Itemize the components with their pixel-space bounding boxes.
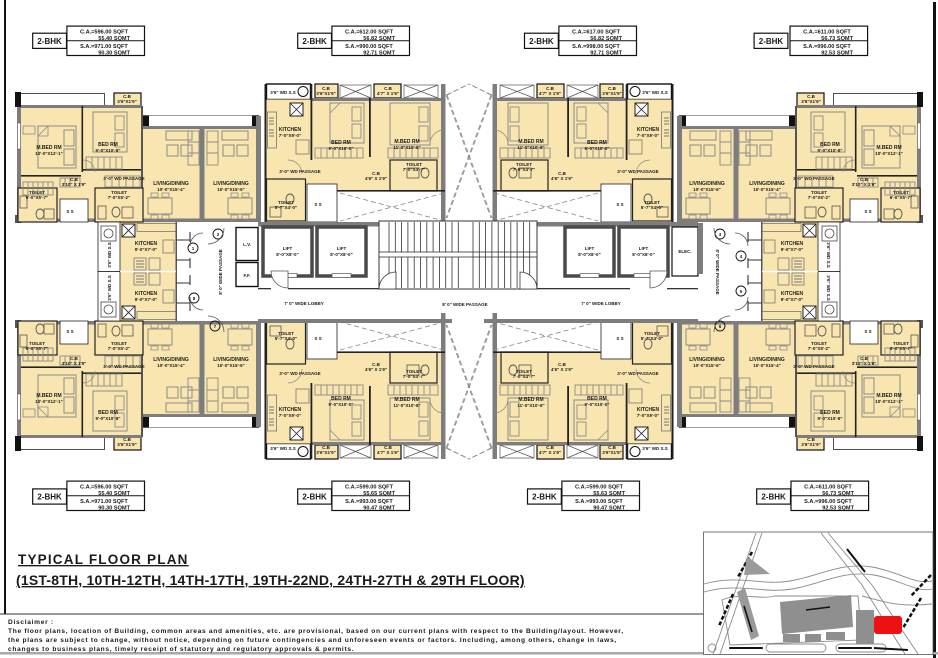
svg-text:C.A.=611.00 SQFT: C.A.=611.00 SQFT <box>804 485 852 491</box>
svg-text:S.A.=993.00 SQFT: S.A.=993.00 SQFT <box>345 499 393 505</box>
svg-text:3'6" WD S.S: 3'6" WD S.S <box>826 275 831 300</box>
svg-text:8'-0"X8'-0": 8'-0"X8'-0" <box>632 252 654 257</box>
svg-text:8'-0"X8'-0": 8'-0"X8'-0" <box>578 252 600 257</box>
svg-text:F.F.: F.F. <box>243 273 250 278</box>
svg-text:2-BHK: 2-BHK <box>302 37 327 46</box>
svg-text:2-BHK: 2-BHK <box>37 37 62 46</box>
svg-text:TYPICAL FLOOR PLAN: TYPICAL FLOOR PLAN <box>18 552 189 567</box>
svg-text:9'-0"X10'-0": 9'-0"X10'-0" <box>585 146 610 151</box>
svg-text:8'-0"X8'-0": 8'-0"X8'-0" <box>330 252 352 257</box>
svg-text:S.A.=971.00 SQFT: S.A.=971.00 SQFT <box>80 44 128 50</box>
svg-text:10'-0"X15'-6": 10'-0"X15'-6" <box>217 363 244 368</box>
svg-text:3'6"X1'9": 3'6"X1'9" <box>117 99 136 104</box>
svg-text:LIFT: LIFT <box>639 246 649 251</box>
svg-text:7'-0"X4'-7": 7'-0"X4'-7" <box>403 374 425 379</box>
svg-text:7'-0"X9'-0": 7'-0"X9'-0" <box>637 413 659 418</box>
svg-text:ELEC.: ELEC. <box>678 249 691 254</box>
svg-text:LIFT: LIFT <box>283 246 293 251</box>
svg-text:the plans are subject to chang: the plans are subject to change, without… <box>8 637 617 644</box>
svg-text:3'6"X1'9": 3'6"X1'9" <box>117 442 136 447</box>
svg-text:S S: S S <box>314 336 321 341</box>
svg-text:3'6"X1'9": 3'6"X1'9" <box>801 442 820 447</box>
svg-text:S S: S S <box>616 336 623 341</box>
svg-text:10'-0"X15'-6": 10'-0"X15'-6" <box>693 187 720 192</box>
svg-text:92.53 SQMT: 92.53 SQMT <box>821 50 853 56</box>
svg-text:8' 0" WIDE PASSAGE: 8' 0" WIDE PASSAGE <box>715 249 720 294</box>
svg-text:7'-0"X4'-7": 7'-0"X4'-7" <box>513 167 535 172</box>
svg-text:4'6" X 1'9": 4'6" X 1'9" <box>365 176 387 181</box>
svg-text:10'-0"X12'-1": 10'-0"X12'-1" <box>875 151 902 156</box>
svg-text:3'6" WD S.S: 3'6" WD S.S <box>107 242 112 267</box>
svg-text:C.A.=599.00 SQFT: C.A.=599.00 SQFT <box>345 485 394 491</box>
svg-text:11'-0"X10'-8": 11'-0"X10'-8" <box>393 145 420 150</box>
svg-text:2-BHK: 2-BHK <box>761 493 786 502</box>
svg-text:7'-0"X5'-2": 7'-0"X5'-2" <box>808 195 830 200</box>
svg-text:(1ST-8TH, 10TH-12TH, 14TH-17TH: (1ST-8TH, 10TH-12TH, 14TH-17TH, 19TH-22N… <box>16 572 525 588</box>
svg-text:8'-0"X8'-0": 8'-0"X8'-0" <box>276 252 298 257</box>
svg-text:10'-0"X15'-4": 10'-0"X15'-4" <box>753 363 780 368</box>
svg-text:3'6" WD S.S: 3'6" WD S.S <box>107 275 112 300</box>
svg-text:3'-0" WD PASSAGE: 3'-0" WD PASSAGE <box>279 371 320 376</box>
svg-text:9'-0"X7'-0": 9'-0"X7'-0" <box>135 247 157 252</box>
svg-text:4'6" X 1'9": 4'6" X 1'9" <box>551 176 573 181</box>
svg-text:6'-0"X5'-7": 6'-0"X5'-7" <box>26 346 48 351</box>
svg-text:7'-0"X5'-2": 7'-0"X5'-2" <box>108 346 130 351</box>
svg-text:3'6" WD S.S: 3'6" WD S.S <box>642 446 667 451</box>
svg-text:2-BHK: 2-BHK <box>532 493 557 502</box>
svg-text:7'-0"X4'-7": 7'-0"X4'-7" <box>403 167 425 172</box>
svg-text:7'-0"X9'-0": 7'-0"X9'-0" <box>637 133 659 138</box>
svg-text:11'-0"X10'-8": 11'-0"X10'-8" <box>393 403 420 408</box>
svg-text:LIFT: LIFT <box>337 246 347 251</box>
svg-text:3'-0" WD PASSAGE: 3'-0" WD PASSAGE <box>103 176 144 181</box>
svg-text:10'-0"X12'-1": 10'-0"X12'-1" <box>875 399 902 404</box>
svg-text:C.A.=617.00 SQFT: C.A.=617.00 SQFT <box>572 30 621 36</box>
svg-text:5'-7"X4'-0": 5'-7"X4'-0" <box>641 336 663 341</box>
svg-text:S.A.=996.00 SQFT: S.A.=996.00 SQFT <box>804 499 852 505</box>
svg-text:3'6" WD S.S: 3'6" WD S.S <box>642 90 667 95</box>
svg-text:10'-0"X15'-4": 10'-0"X15'-4" <box>753 187 780 192</box>
svg-text:56.82 SQMT: 56.82 SQMT <box>590 36 622 42</box>
svg-text:3'6" WD S.S: 3'6" WD S.S <box>270 90 295 95</box>
svg-text:5'-7"X4'-0": 5'-7"X4'-0" <box>275 205 297 210</box>
svg-text:S S: S S <box>864 329 871 334</box>
svg-text:7'-0"X9'-0": 7'-0"X9'-0" <box>279 413 301 418</box>
svg-text:S.A.=990.00 SQFT: S.A.=990.00 SQFT <box>345 44 393 50</box>
svg-text:3'6" WD S.S: 3'6" WD S.S <box>826 242 831 267</box>
svg-text:3'6"X1'9": 3'6"X1'9" <box>602 91 621 96</box>
svg-text:S S: S S <box>314 202 321 207</box>
svg-text:90.47 SQMT: 90.47 SQMT <box>593 505 625 511</box>
svg-text:9'-0"X7'-0": 9'-0"X7'-0" <box>781 247 803 252</box>
svg-text:10'-0"X12'-1": 10'-0"X12'-1" <box>35 151 62 156</box>
svg-text:7' 0" WIDE LOBBY: 7' 0" WIDE LOBBY <box>581 301 620 306</box>
svg-text:90.30 SQMT: 90.30 SQMT <box>98 50 130 56</box>
svg-text:56.73 SQMT: 56.73 SQMT <box>821 36 853 42</box>
svg-text:9'-0"X10'-8": 9'-0"X10'-8" <box>96 416 121 421</box>
svg-text:2-BHK: 2-BHK <box>759 37 784 46</box>
svg-text:7'-0"X9'-0": 7'-0"X9'-0" <box>279 133 301 138</box>
svg-text:55.40 SQMT: 55.40 SQMT <box>98 491 130 497</box>
svg-text:90.30 SQMT: 90.30 SQMT <box>98 505 130 511</box>
svg-text:The floor plans, location of B: The floor plans, location of Building, c… <box>8 628 624 635</box>
svg-text:2-BHK: 2-BHK <box>302 493 327 502</box>
svg-text:11'-0"X10'-8": 11'-0"X10'-8" <box>517 145 544 150</box>
svg-text:10'-0"X15'-6": 10'-0"X15'-6" <box>217 187 244 192</box>
svg-text:4'6" X 1'9": 4'6" X 1'9" <box>365 367 387 372</box>
svg-text:5'-7"X4'-0": 5'-7"X4'-0" <box>275 336 297 341</box>
svg-text:3'-0" WD PASSAGE: 3'-0" WD PASSAGE <box>617 371 658 376</box>
svg-text:6'-0"X5'-7": 6'-0"X5'-7" <box>890 195 912 200</box>
svg-text:5'-7"X4'-0": 5'-7"X4'-0" <box>641 205 663 210</box>
svg-text:6'-0"X5'-7": 6'-0"X5'-7" <box>890 346 912 351</box>
svg-text:4'7" X 1'9": 4'7" X 1'9" <box>377 450 399 455</box>
svg-text:9'-0"X10'-0": 9'-0"X10'-0" <box>329 146 354 151</box>
svg-text:C.A.=612.00 SQFT: C.A.=612.00 SQFT <box>345 30 394 36</box>
svg-text:7' 0" WIDE LOBBY: 7' 0" WIDE LOBBY <box>284 301 323 306</box>
svg-text:9'-0"X7'-0": 9'-0"X7'-0" <box>781 297 803 302</box>
svg-text:56.82 SQMT: 56.82 SQMT <box>363 36 395 42</box>
svg-text:92.71 SQMT: 92.71 SQMT <box>363 50 395 56</box>
svg-text:S.A.=993.00 SQFT: S.A.=993.00 SQFT <box>575 499 623 505</box>
svg-text:55.65 SQMT: 55.65 SQMT <box>363 491 395 497</box>
svg-text:S.A.=998.00 SQFT: S.A.=998.00 SQFT <box>572 44 620 50</box>
svg-text:3'10" X 1'9": 3'10" X 1'9" <box>852 182 876 187</box>
svg-text:C.A.=611.00 SQFT: C.A.=611.00 SQFT <box>803 30 851 36</box>
svg-text:55.40 SQMT: 55.40 SQMT <box>98 36 130 42</box>
svg-text:L.V.: L.V. <box>243 242 251 247</box>
svg-text:3'6"X1'9": 3'6"X1'9" <box>602 450 621 455</box>
svg-text:S S: S S <box>616 202 623 207</box>
svg-text:9'-0"X7'-0": 9'-0"X7'-0" <box>135 297 157 302</box>
svg-text:4'7" X 1'9": 4'7" X 1'9" <box>377 91 399 96</box>
svg-text:S.A.=971.00 SQFT: S.A.=971.00 SQFT <box>80 499 128 505</box>
svg-text:10'-0"X15'-4": 10'-0"X15'-4" <box>157 363 184 368</box>
svg-text:C.A.=599.00 SQFT: C.A.=599.00 SQFT <box>575 485 624 491</box>
svg-text:7'-0"X5'-2": 7'-0"X5'-2" <box>808 346 830 351</box>
svg-text:S S: S S <box>66 209 73 214</box>
svg-text:9'-0"X10'-8": 9'-0"X10'-8" <box>818 148 843 153</box>
svg-text:11'-0"X10'-8": 11'-0"X10'-8" <box>517 403 544 408</box>
svg-text:8' 0" WIDE PASSAGE: 8' 0" WIDE PASSAGE <box>442 302 487 307</box>
svg-text:7'-0"X5'-2": 7'-0"X5'-2" <box>108 195 130 200</box>
svg-text:8' 0" WIDE PASSAGE: 8' 0" WIDE PASSAGE <box>218 249 223 294</box>
svg-text:6'-0"X5'-7": 6'-0"X5'-7" <box>26 195 48 200</box>
svg-text:92.71 SQMT: 92.71 SQMT <box>590 50 622 56</box>
svg-text:7'-0"X4'-7": 7'-0"X4'-7" <box>513 374 535 379</box>
svg-text:10'-0"X15'-4": 10'-0"X15'-4" <box>157 187 184 192</box>
svg-text:55.63 SQMT: 55.63 SQMT <box>593 491 625 497</box>
svg-text:9'-0"X10'-0": 9'-0"X10'-0" <box>585 402 610 407</box>
svg-text:2-BHK: 2-BHK <box>37 493 62 502</box>
svg-text:3'-0" WD PASSAGE: 3'-0" WD PASSAGE <box>793 176 834 181</box>
svg-text:56.73 SQMT: 56.73 SQMT <box>822 491 854 497</box>
svg-text:S.A.=996.00 SQFT: S.A.=996.00 SQFT <box>803 44 851 50</box>
svg-text:changes to business plans, tim: changes to business plans, timely receip… <box>8 646 354 653</box>
svg-text:4'6" X 1'9": 4'6" X 1'9" <box>551 367 573 372</box>
svg-text:2-BHK: 2-BHK <box>529 37 554 46</box>
svg-text:3'-0" WD PASSAGE: 3'-0" WD PASSAGE <box>103 364 144 369</box>
svg-text:3'-0" WD PASSAGE: 3'-0" WD PASSAGE <box>279 169 320 174</box>
svg-text:C.A.=596.00 SQFT: C.A.=596.00 SQFT <box>80 30 129 36</box>
svg-text:3'10" X 1'9": 3'10" X 1'9" <box>62 182 86 187</box>
svg-text:C.A.=596.00 SQFT: C.A.=596.00 SQFT <box>80 485 129 491</box>
svg-text:3'-0" WD PASSAGE: 3'-0" WD PASSAGE <box>793 364 834 369</box>
svg-text:3'6"X1'9": 3'6"X1'9" <box>316 91 335 96</box>
svg-text:4'7" X 1'9": 4'7" X 1'9" <box>539 450 561 455</box>
svg-text:10'-0"X12'-1": 10'-0"X12'-1" <box>35 399 62 404</box>
svg-text:90.47 SQMT: 90.47 SQMT <box>363 505 395 511</box>
svg-text:S S: S S <box>66 329 73 334</box>
svg-text:S S: S S <box>864 209 871 214</box>
svg-text:3'6"X1'9": 3'6"X1'9" <box>801 99 820 104</box>
svg-text:9'-0"X10'-8": 9'-0"X10'-8" <box>96 148 121 153</box>
svg-text:9'-0"X10'-8": 9'-0"X10'-8" <box>818 416 843 421</box>
svg-text:3'10" X 1'9": 3'10" X 1'9" <box>62 361 86 366</box>
svg-text:LIFT: LIFT <box>585 246 595 251</box>
svg-text:3'10" X 1'9": 3'10" X 1'9" <box>852 361 876 366</box>
svg-text:10'-0"X15'-6": 10'-0"X15'-6" <box>693 363 720 368</box>
svg-text:3'6" WD S.S: 3'6" WD S.S <box>270 446 295 451</box>
svg-text:4'7" X 1'9": 4'7" X 1'9" <box>539 91 561 96</box>
svg-text:Disclaimer :: Disclaimer : <box>8 619 54 626</box>
svg-text:3'-0" WD PASSAGE: 3'-0" WD PASSAGE <box>617 169 658 174</box>
svg-text:9'-0"X10'-0": 9'-0"X10'-0" <box>329 402 354 407</box>
svg-text:3'6"X1'9": 3'6"X1'9" <box>316 450 335 455</box>
svg-text:92.53 SQMT: 92.53 SQMT <box>822 505 854 511</box>
